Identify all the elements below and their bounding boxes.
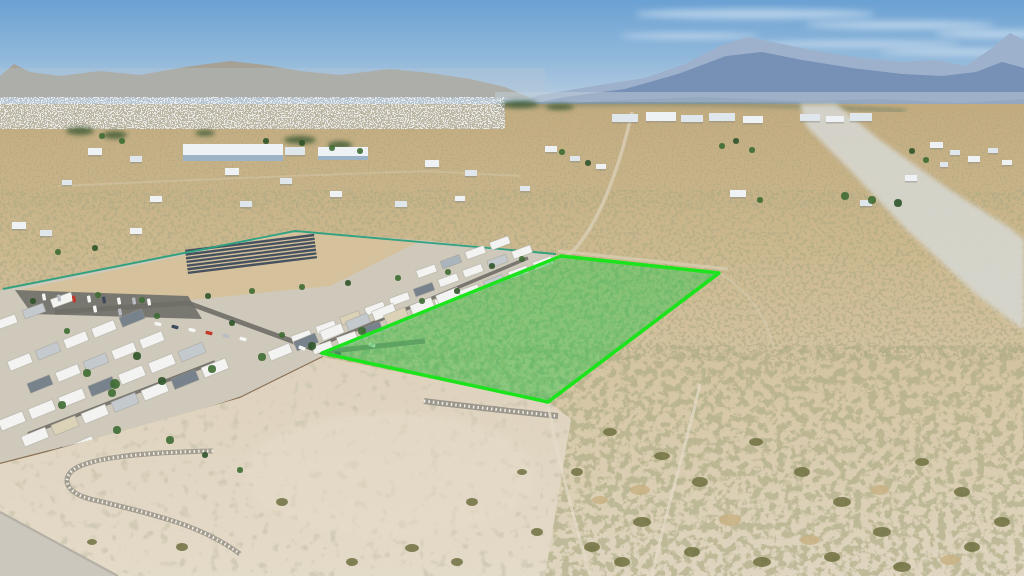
building xyxy=(826,116,844,122)
shrub xyxy=(571,468,583,476)
building xyxy=(800,114,820,121)
building xyxy=(150,196,162,202)
pad-cleared-area xyxy=(245,413,535,537)
haze-left xyxy=(0,68,545,102)
tree xyxy=(519,256,525,262)
building xyxy=(318,156,368,160)
building xyxy=(62,180,72,185)
shrub xyxy=(87,539,97,545)
shrub xyxy=(684,547,700,557)
shrub xyxy=(994,517,1010,527)
tree xyxy=(299,284,305,290)
tree xyxy=(133,352,141,360)
tree xyxy=(329,145,335,151)
building-shadow xyxy=(225,175,239,177)
building-shadow xyxy=(730,197,746,199)
tree xyxy=(229,320,235,326)
tree xyxy=(58,401,66,409)
tree xyxy=(110,379,120,389)
tree xyxy=(108,389,116,397)
building xyxy=(130,228,142,234)
shrub xyxy=(873,527,891,537)
building xyxy=(1002,160,1012,165)
tree xyxy=(585,160,591,166)
building xyxy=(425,160,439,167)
building xyxy=(183,155,283,161)
building xyxy=(968,156,980,162)
building xyxy=(646,112,676,121)
tree xyxy=(208,365,216,373)
building xyxy=(40,230,52,236)
aerial-photo-canvas xyxy=(0,0,1024,576)
tree xyxy=(279,332,285,338)
cloud xyxy=(620,33,760,39)
building xyxy=(681,115,703,122)
tree-grove xyxy=(103,131,127,139)
shrub xyxy=(584,542,600,552)
shrub xyxy=(800,535,820,545)
building xyxy=(596,164,606,169)
tree xyxy=(419,298,425,304)
shrub xyxy=(592,496,608,504)
building-shadow xyxy=(940,167,948,169)
tree xyxy=(345,280,351,286)
shrub xyxy=(176,543,188,551)
shrub xyxy=(614,557,630,567)
shrub xyxy=(719,514,741,526)
building-shadow xyxy=(709,121,735,123)
shrub xyxy=(833,497,851,507)
building xyxy=(520,186,530,191)
building-shadow xyxy=(40,236,52,238)
tree xyxy=(909,148,915,154)
tree xyxy=(299,140,305,146)
building-shadow xyxy=(850,121,872,123)
shrub xyxy=(451,558,463,566)
building xyxy=(743,116,763,123)
building-shadow xyxy=(240,207,252,209)
building-shadow xyxy=(465,176,477,178)
tree xyxy=(83,369,91,377)
building-shadow xyxy=(330,197,342,199)
building-shadow xyxy=(968,162,980,164)
building-shadow xyxy=(646,121,676,123)
tree xyxy=(55,249,61,255)
building-shadow xyxy=(570,161,580,163)
building-shadow xyxy=(425,167,439,169)
tree-grove xyxy=(66,127,94,135)
tree xyxy=(99,133,105,139)
shrub xyxy=(531,528,543,536)
shrub xyxy=(871,485,889,495)
shrub xyxy=(794,467,810,477)
building xyxy=(240,201,252,207)
building xyxy=(280,178,292,184)
building-shadow xyxy=(130,234,142,236)
building xyxy=(545,146,557,152)
shrub xyxy=(749,438,763,446)
building-shadow xyxy=(150,202,162,204)
shrub xyxy=(346,558,358,566)
tree xyxy=(92,245,98,251)
building-shadow xyxy=(800,121,820,123)
building-shadow xyxy=(950,155,960,157)
building-shadow xyxy=(681,122,703,124)
tree xyxy=(113,426,121,434)
tree xyxy=(559,149,565,155)
tree xyxy=(308,342,316,350)
building xyxy=(730,190,746,197)
building-shadow xyxy=(280,184,292,186)
building-shadow xyxy=(62,185,72,187)
shrub xyxy=(753,557,771,567)
building-shadow xyxy=(905,181,917,183)
building xyxy=(395,201,407,207)
shrub xyxy=(654,452,670,460)
shrub xyxy=(940,555,960,565)
tree xyxy=(749,147,755,153)
building xyxy=(225,168,239,175)
building xyxy=(455,196,465,201)
building xyxy=(130,156,142,162)
building-shadow xyxy=(826,122,844,124)
tree xyxy=(205,293,211,299)
building-shadow xyxy=(545,152,557,154)
tree xyxy=(154,313,160,319)
building xyxy=(88,148,102,155)
building xyxy=(285,147,305,155)
tree-grove xyxy=(502,100,538,108)
shrub xyxy=(692,477,708,487)
shrub xyxy=(466,498,478,506)
tree xyxy=(139,297,145,303)
tree xyxy=(64,328,70,334)
aerial-photo xyxy=(0,0,1024,576)
building-shadow xyxy=(988,153,998,155)
shrub xyxy=(915,458,929,466)
building-shadow xyxy=(88,155,102,157)
tree xyxy=(489,263,495,269)
building-shadow xyxy=(930,148,943,150)
tree xyxy=(119,138,125,144)
tree xyxy=(202,452,208,458)
tree xyxy=(263,138,269,144)
tree xyxy=(395,275,401,281)
tree-grove xyxy=(546,104,574,110)
tree xyxy=(454,288,460,294)
building-shadow xyxy=(596,169,606,171)
tree xyxy=(733,138,739,144)
distant-town xyxy=(0,97,505,129)
shrub xyxy=(630,485,650,495)
tree xyxy=(258,353,266,361)
tree xyxy=(249,288,255,294)
building xyxy=(930,142,943,148)
tree xyxy=(95,292,101,298)
building xyxy=(465,170,477,176)
shrub xyxy=(517,469,527,475)
tree xyxy=(923,157,929,163)
shrub xyxy=(633,517,651,527)
building xyxy=(940,162,948,167)
tree xyxy=(166,436,174,444)
tree xyxy=(868,196,876,204)
building-shadow xyxy=(130,162,142,164)
tree xyxy=(445,269,451,275)
building xyxy=(950,150,960,155)
building-shadow xyxy=(12,229,26,231)
shrub xyxy=(603,428,617,436)
building xyxy=(12,222,26,229)
building xyxy=(183,144,283,156)
cloud xyxy=(635,9,875,19)
building xyxy=(905,175,917,181)
shrub xyxy=(276,498,288,506)
building-shadow xyxy=(285,155,305,157)
tree xyxy=(237,467,243,473)
shrub xyxy=(893,562,911,572)
building-shadow xyxy=(612,122,638,124)
tree-grove xyxy=(195,130,215,136)
tree xyxy=(841,192,849,200)
tree xyxy=(158,377,166,385)
shrub xyxy=(954,487,970,497)
tree xyxy=(757,197,763,203)
building-shadow xyxy=(860,206,872,208)
building xyxy=(570,156,580,161)
shrub xyxy=(824,552,840,562)
building xyxy=(850,113,872,121)
tree xyxy=(30,298,36,304)
tree xyxy=(719,143,725,149)
tree xyxy=(357,148,363,154)
building xyxy=(709,113,735,121)
shrub xyxy=(405,544,419,552)
tree xyxy=(894,199,902,207)
building-shadow xyxy=(1002,165,1012,167)
building xyxy=(612,114,638,122)
building-shadow xyxy=(455,201,465,203)
building xyxy=(988,148,998,153)
shrub xyxy=(964,542,980,552)
cloud xyxy=(805,21,995,29)
building-shadow xyxy=(743,123,763,125)
building-shadow xyxy=(395,207,407,209)
building xyxy=(330,191,342,197)
building-shadow xyxy=(520,191,530,193)
